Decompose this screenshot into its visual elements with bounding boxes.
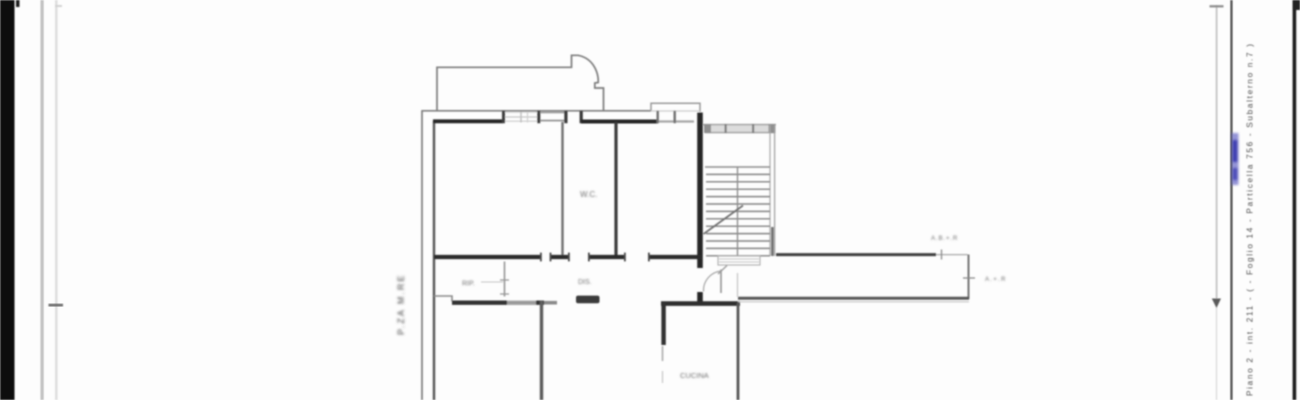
svg-text:Piano 2 - int. 211 - ( - Fogli: Piano 2 - int. 211 - ( - Foglio 14 - Par… xyxy=(1246,42,1255,396)
svg-text:CUCINA: CUCINA xyxy=(680,371,709,380)
svg-text:P.ZA M.RE: P.ZA M.RE xyxy=(396,274,406,335)
svg-text:A.+.R: A.+.R xyxy=(985,276,1007,283)
svg-text:W.C.: W.C. xyxy=(580,190,597,199)
svg-text:A.B.+.R: A.B.+.R xyxy=(931,235,958,242)
svg-text:RIP.: RIP. xyxy=(462,281,475,288)
svg-text:DIS.: DIS. xyxy=(578,279,592,286)
